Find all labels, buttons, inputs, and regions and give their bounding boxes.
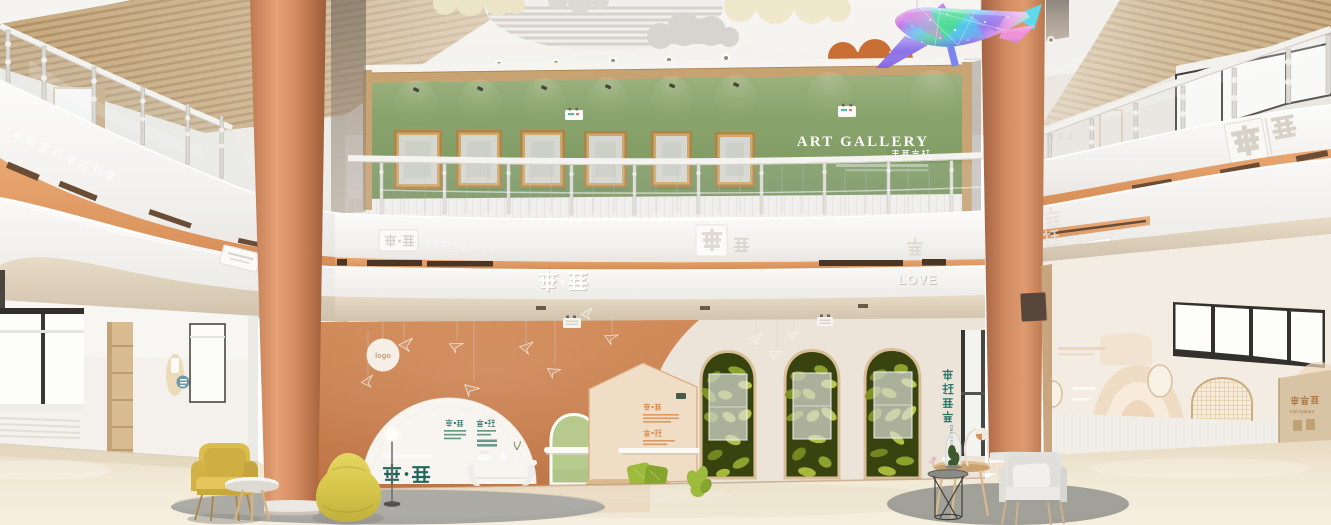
svg-text:LOVE: LOVE <box>898 272 937 287</box>
svg-text:logo: logo <box>375 351 391 360</box>
svg-text:Fire hydrant: Fire hydrant <box>1290 409 1315 414</box>
svg-text:ART GALLERY: ART GALLERY <box>797 134 929 150</box>
